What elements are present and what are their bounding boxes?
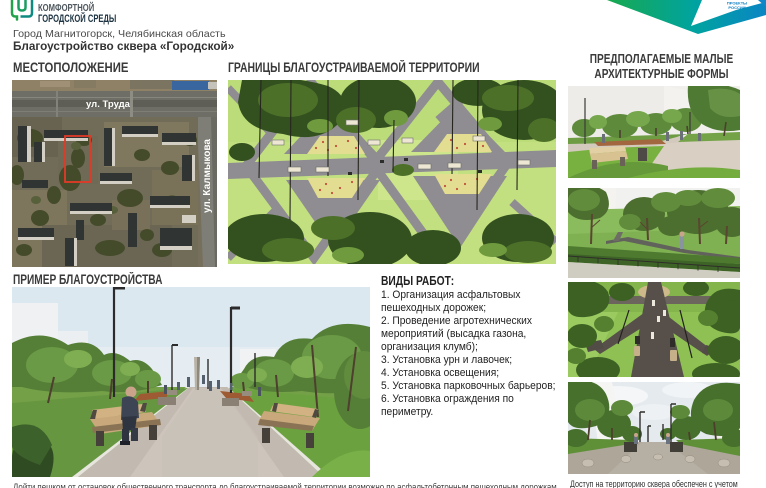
svg-text:ул. Калмыкова: ул. Калмыкова bbox=[202, 139, 213, 213]
svg-text:ул. Труда: ул. Труда bbox=[86, 99, 131, 110]
svg-text:РОССИИ: РОССИИ bbox=[728, 5, 745, 10]
